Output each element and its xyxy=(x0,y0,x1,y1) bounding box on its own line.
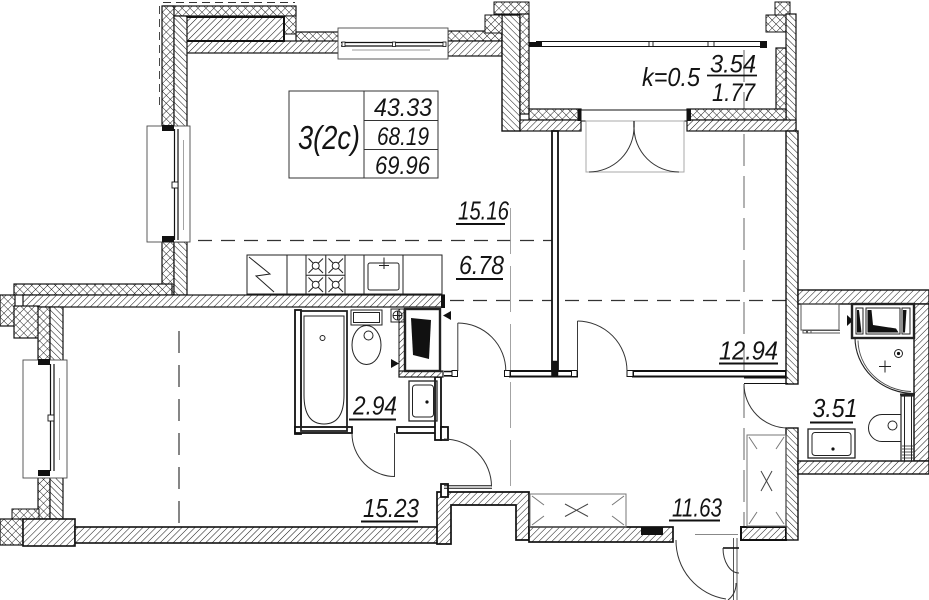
svg-text:11.63: 11.63 xyxy=(672,493,722,523)
svg-text:43.33: 43.33 xyxy=(374,94,432,122)
svg-text:69.96: 69.96 xyxy=(375,152,430,180)
svg-text:15.23: 15.23 xyxy=(363,493,419,523)
svg-text:12.94: 12.94 xyxy=(719,336,778,366)
svg-text:6.78: 6.78 xyxy=(459,250,504,280)
svg-text:15.16: 15.16 xyxy=(458,196,509,226)
svg-text:3.54: 3.54 xyxy=(710,51,756,79)
svg-text:3(2c): 3(2c) xyxy=(298,119,360,156)
svg-text:2.94: 2.94 xyxy=(352,391,397,421)
svg-text:1.77: 1.77 xyxy=(712,79,756,107)
svg-text:3.51: 3.51 xyxy=(813,393,858,423)
svg-text:k=0.5: k=0.5 xyxy=(642,62,700,92)
svg-text:68.19: 68.19 xyxy=(377,123,429,151)
